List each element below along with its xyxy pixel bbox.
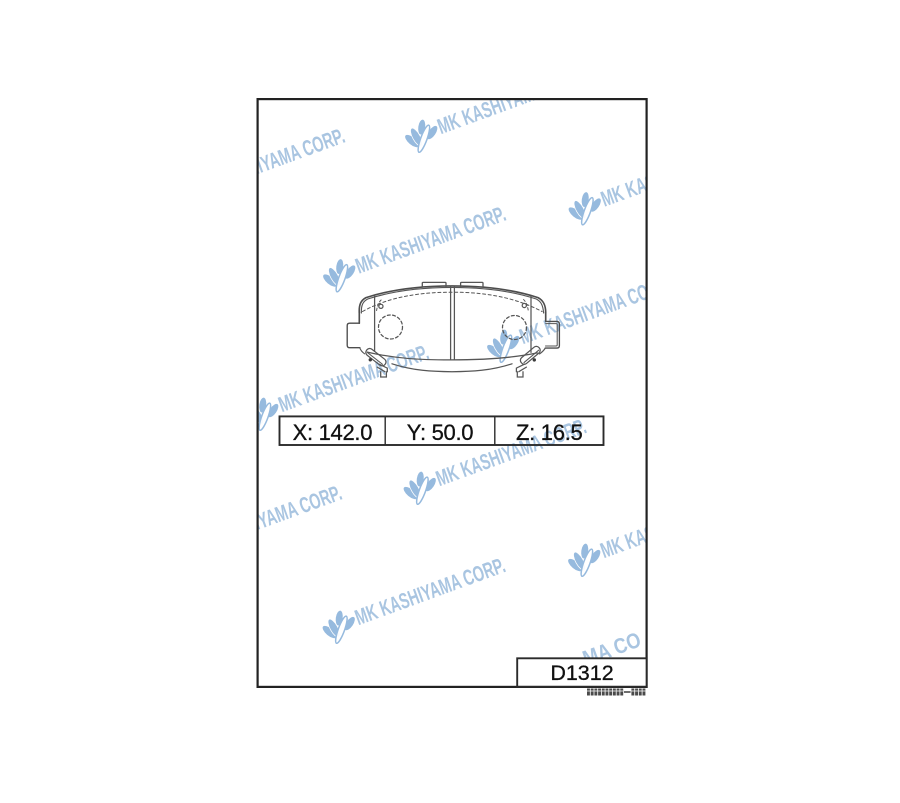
svg-text:Z: 16.5: Z: 16.5 [516, 420, 582, 445]
svg-text:Y: 50.0: Y: 50.0 [407, 420, 473, 445]
svg-text:X: 142.0: X: 142.0 [293, 420, 373, 445]
svg-text:D1312: D1312 [550, 661, 613, 685]
